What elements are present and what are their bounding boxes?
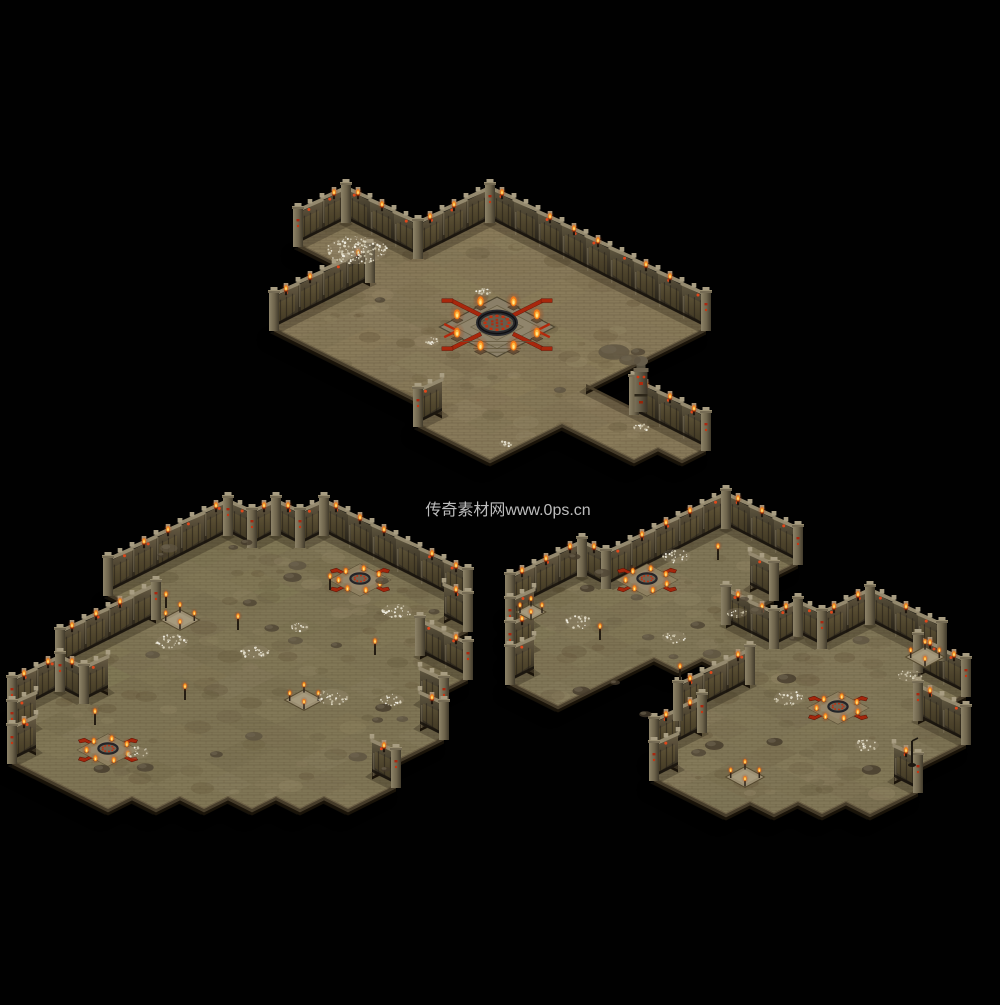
svg-text:传奇素材网www.0ps.cn: 传奇素材网www.0ps.cn	[425, 501, 590, 519]
